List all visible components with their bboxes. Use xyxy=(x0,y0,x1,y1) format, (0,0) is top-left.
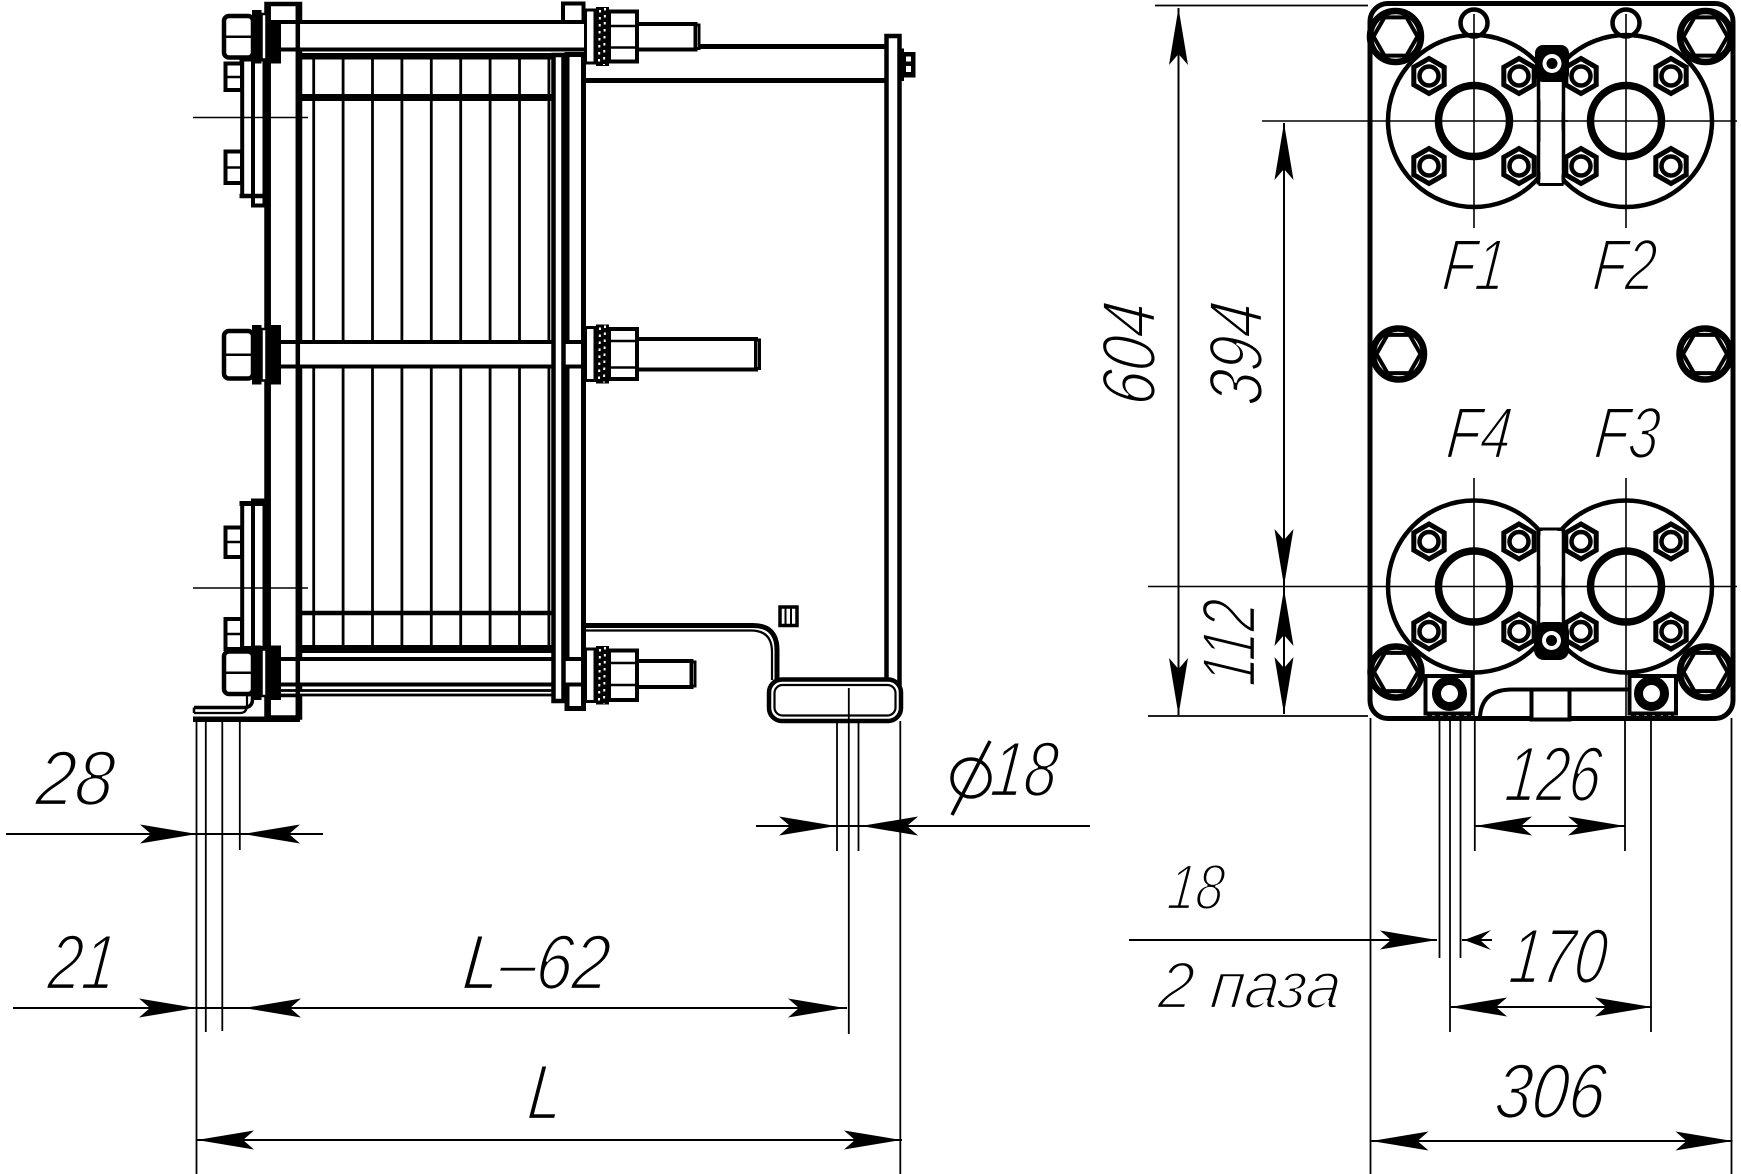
svg-text:F3: F3 xyxy=(1591,392,1664,474)
svg-text:28: 28 xyxy=(32,734,120,822)
svg-text:126: 126 xyxy=(1502,730,1607,818)
svg-text:18: 18 xyxy=(987,725,1063,813)
svg-text:L–62: L–62 xyxy=(459,918,614,1006)
svg-text:112: 112 xyxy=(1187,596,1272,689)
svg-text:F4: F4 xyxy=(1443,392,1516,474)
svg-text:F2: F2 xyxy=(1590,224,1661,306)
svg-text:21: 21 xyxy=(44,918,121,1006)
svg-text:306: 306 xyxy=(1491,1047,1611,1135)
svg-text:F1: F1 xyxy=(1439,224,1510,306)
svg-text:170: 170 xyxy=(1506,912,1612,1000)
svg-text:2 паза: 2 паза xyxy=(1154,949,1345,1023)
svg-text:18: 18 xyxy=(1165,851,1229,923)
svg-text:394: 394 xyxy=(1194,298,1279,409)
svg-text:604: 604 xyxy=(1087,298,1172,409)
